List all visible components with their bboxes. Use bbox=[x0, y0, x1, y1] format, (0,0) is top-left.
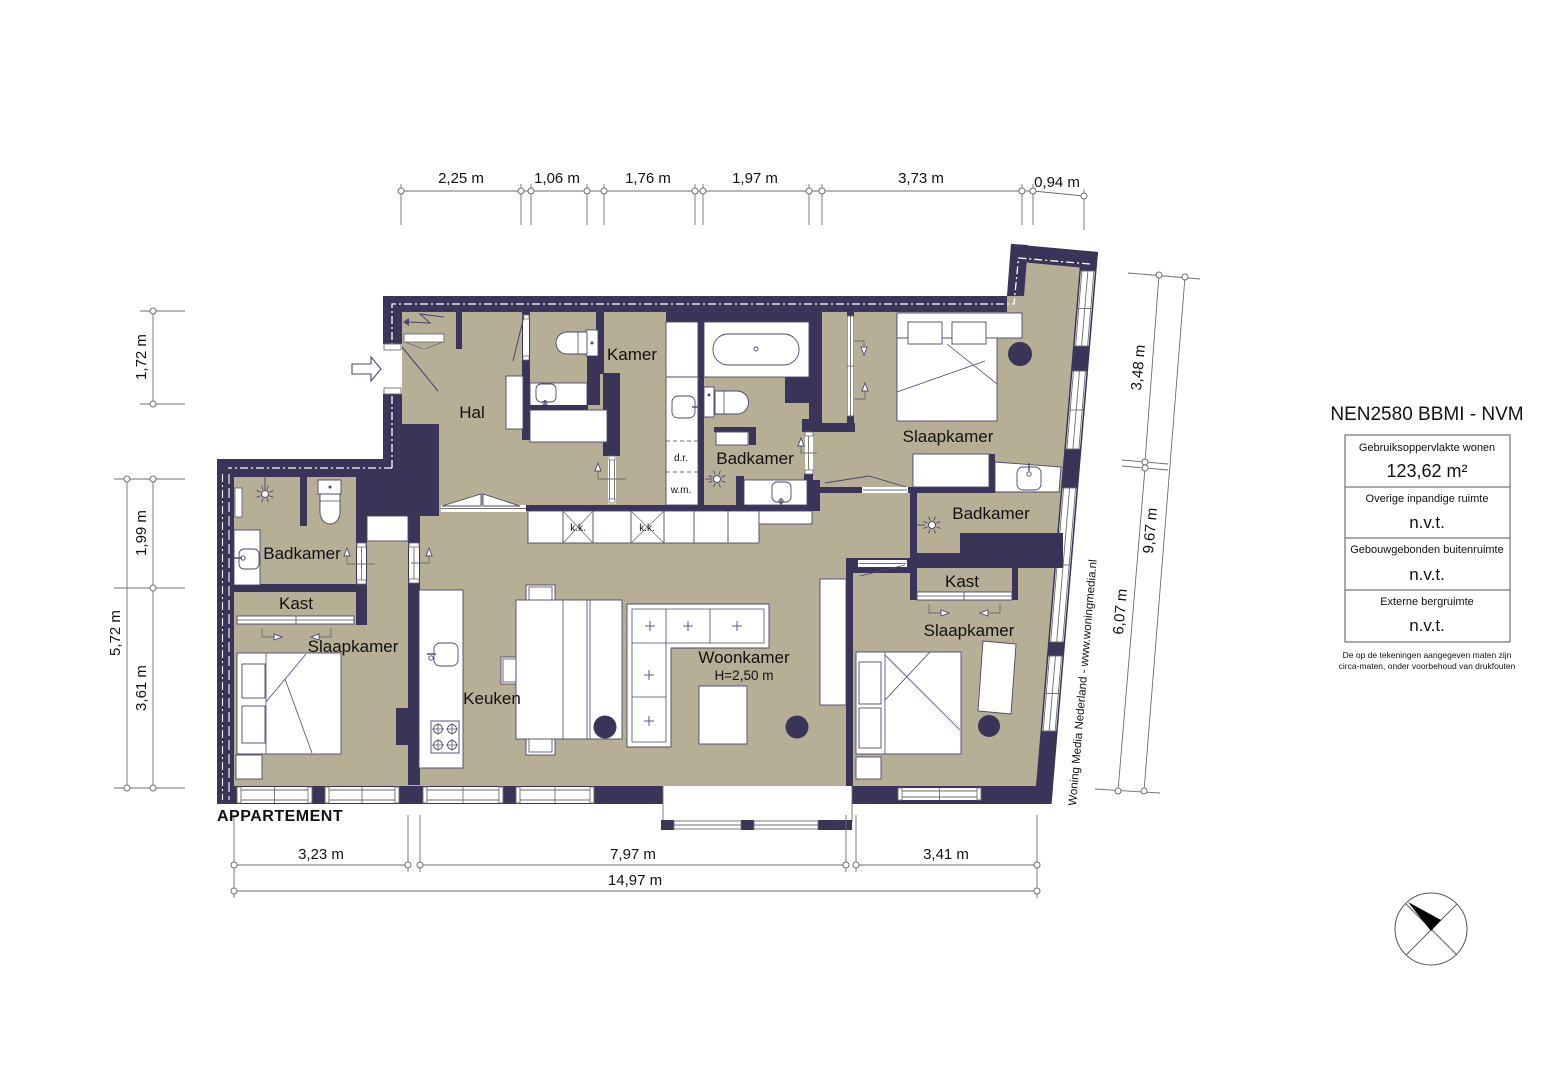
svg-text:Overige inpandige ruimte: Overige inpandige ruimte bbox=[1366, 493, 1489, 505]
svg-text:Badkamer: Badkamer bbox=[716, 449, 794, 468]
svg-text:3,41 m: 3,41 m bbox=[923, 846, 969, 863]
svg-text:0,94 m: 0,94 m bbox=[1034, 174, 1080, 191]
svg-text:1,97 m: 1,97 m bbox=[732, 170, 778, 187]
svg-text:Kamer: Kamer bbox=[607, 345, 657, 364]
svg-text:3,23 m: 3,23 m bbox=[298, 846, 344, 863]
svg-text:NEN2580 BBMI - NVM: NEN2580 BBMI - NVM bbox=[1330, 404, 1523, 425]
svg-text:circa-maten, onder voorbehoud: circa-maten, onder voorbehoud van drukfo… bbox=[1339, 661, 1516, 671]
svg-text:n.v.t.: n.v.t. bbox=[1409, 513, 1445, 532]
svg-text:Badkamer: Badkamer bbox=[263, 544, 341, 563]
svg-text:14,97 m: 14,97 m bbox=[608, 872, 662, 889]
svg-text:7,97 m: 7,97 m bbox=[610, 846, 656, 863]
svg-text:De op de tekeningen aangegeven: De op de tekeningen aangegeven maten zij… bbox=[1343, 650, 1512, 660]
svg-text:Woonkamer: Woonkamer bbox=[698, 648, 790, 667]
svg-text:Externe bergruimte: Externe bergruimte bbox=[1380, 596, 1474, 608]
svg-text:Slaapkamer: Slaapkamer bbox=[924, 621, 1015, 640]
svg-text:Kast: Kast bbox=[279, 594, 313, 613]
svg-text:Slaapkamer: Slaapkamer bbox=[903, 427, 994, 446]
svg-text:Kast: Kast bbox=[945, 572, 979, 591]
svg-text:Gebouwgebonden buitenruimte: Gebouwgebonden buitenruimte bbox=[1350, 544, 1504, 556]
svg-text:3,61 m: 3,61 m bbox=[133, 665, 150, 711]
svg-text:Gebruiksoppervlakte wonen: Gebruiksoppervlakte wonen bbox=[1359, 442, 1495, 454]
svg-text:1,99 m: 1,99 m bbox=[133, 510, 150, 556]
svg-text:2,25 m: 2,25 m bbox=[438, 170, 484, 187]
svg-text:APPARTEMENT: APPARTEMENT bbox=[217, 808, 343, 825]
svg-text:5,72 m: 5,72 m bbox=[107, 610, 124, 656]
svg-text:3,73 m: 3,73 m bbox=[898, 170, 944, 187]
svg-text:n.v.t.: n.v.t. bbox=[1409, 616, 1445, 635]
svg-text:n.v.t.: n.v.t. bbox=[1409, 565, 1445, 584]
svg-text:1,76 m: 1,76 m bbox=[625, 170, 671, 187]
svg-text:k.k.: k.k. bbox=[570, 523, 586, 534]
svg-text:H=2,50 m: H=2,50 m bbox=[715, 668, 774, 683]
svg-text:1,72 m: 1,72 m bbox=[133, 334, 150, 380]
svg-text:1,06 m: 1,06 m bbox=[534, 170, 580, 187]
svg-text:Keuken: Keuken bbox=[463, 689, 521, 708]
svg-text:Hal: Hal bbox=[459, 403, 485, 422]
svg-text:Badkamer: Badkamer bbox=[952, 504, 1030, 523]
svg-text:d.r.: d.r. bbox=[674, 453, 688, 464]
svg-text:w.m.: w.m. bbox=[670, 485, 692, 496]
svg-text:k.k.: k.k. bbox=[639, 523, 655, 534]
svg-text:123,62 m²: 123,62 m² bbox=[1386, 461, 1467, 481]
